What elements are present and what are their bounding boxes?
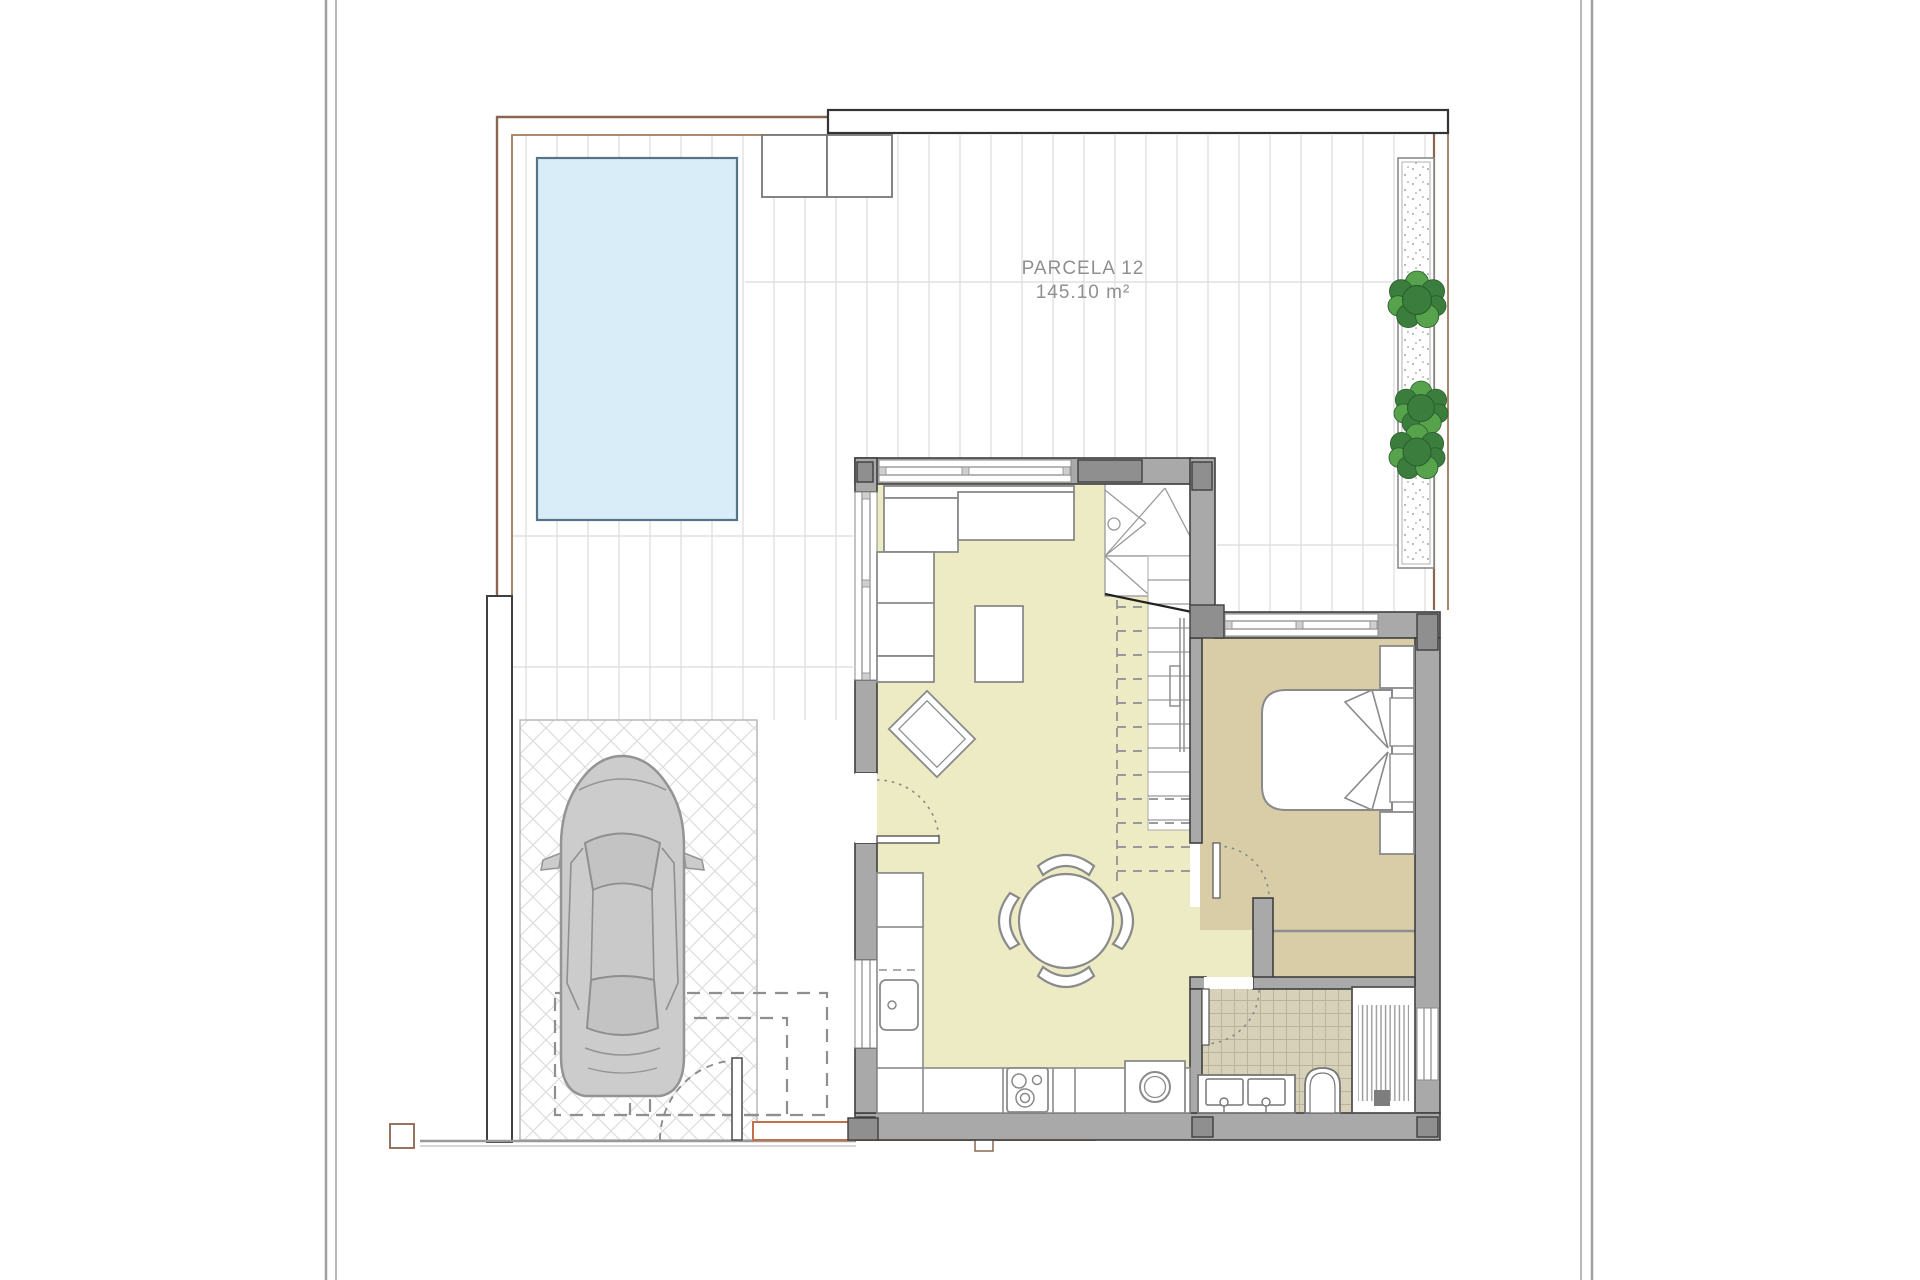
door-leaf [1202, 989, 1209, 1045]
hob [1007, 1068, 1048, 1112]
entry-door-opening [855, 773, 877, 843]
floor-plan-sheet: PARCELA 12 145.10 m² [0, 0, 1920, 1280]
parcel-label: PARCELA 12 [1022, 258, 1145, 279]
planter-strip [1398, 158, 1434, 568]
refrigerator [877, 873, 923, 927]
kitchen-window [855, 960, 877, 1048]
floor-plan-drawing: PARCELA 12 145.10 m² [0, 0, 1920, 1280]
door-leaf [1213, 843, 1220, 898]
gate-leaf [732, 1058, 742, 1140]
door-leaf [877, 836, 939, 843]
living-room-window [879, 460, 1071, 482]
shower [1352, 987, 1415, 1113]
nightstand [1380, 812, 1414, 854]
swimming-pool [537, 158, 737, 520]
dining-table [1019, 874, 1113, 968]
sheet-border-left [326, 0, 336, 1280]
bed [1262, 686, 1414, 814]
bathroom-window [1417, 1008, 1438, 1080]
washing-machine [1125, 1061, 1185, 1113]
parcel-area: 145.10 m² [1036, 282, 1131, 303]
retaining-wall [828, 110, 1448, 133]
sheet-border-right [1581, 0, 1592, 1280]
coffee-table [975, 606, 1023, 682]
street-edge-line [420, 1141, 856, 1146]
shower-drain [1374, 1090, 1390, 1106]
kitchen-sink [880, 980, 918, 1030]
planter-boxes [762, 135, 892, 197]
boundary-wall-pillar [487, 596, 512, 1142]
side-window-upper [855, 492, 877, 680]
nightstand [1380, 646, 1414, 688]
bedroom-window [1225, 614, 1378, 636]
vanity-sinks [1198, 1075, 1295, 1113]
toilet [1305, 1068, 1340, 1113]
bathroom-door-opening [1204, 977, 1253, 989]
boundary-post [390, 1124, 414, 1148]
